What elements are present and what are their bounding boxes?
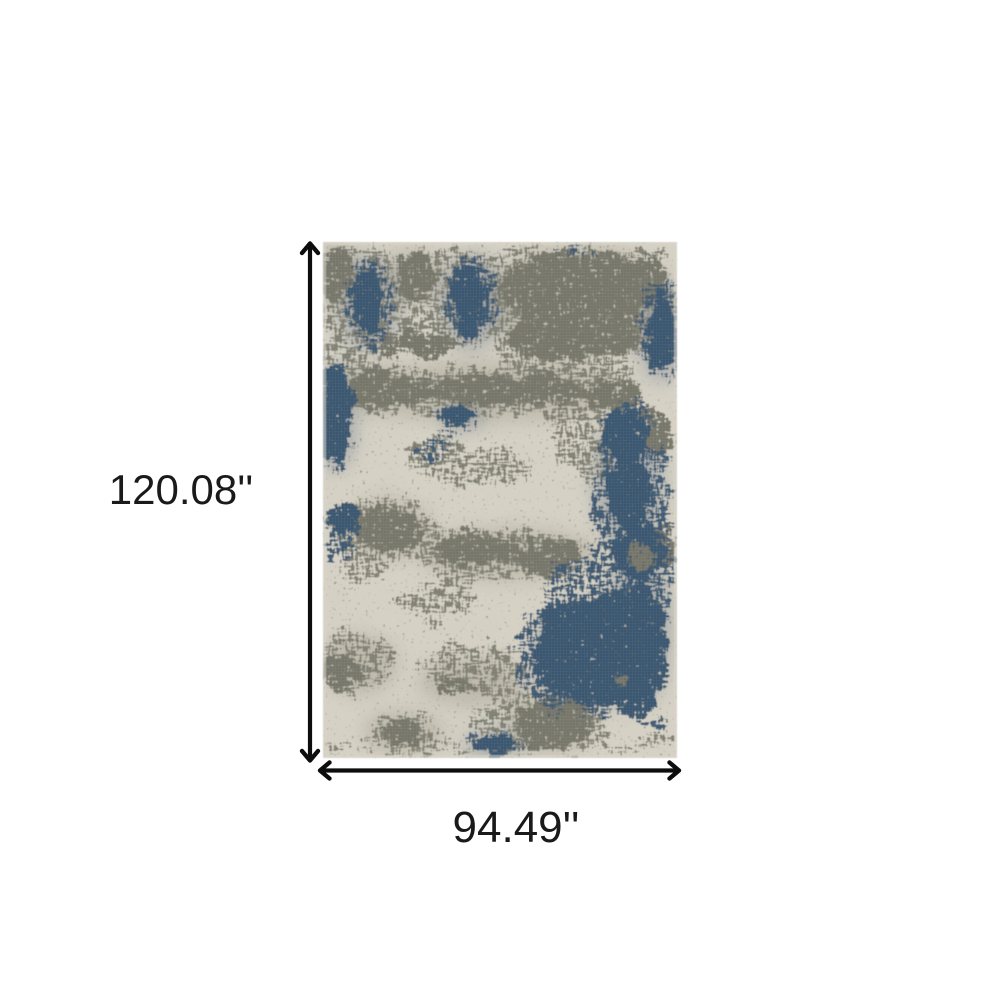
svg-text:94.49'': 94.49'' xyxy=(453,803,580,852)
svg-text:120.08'': 120.08'' xyxy=(109,466,254,513)
